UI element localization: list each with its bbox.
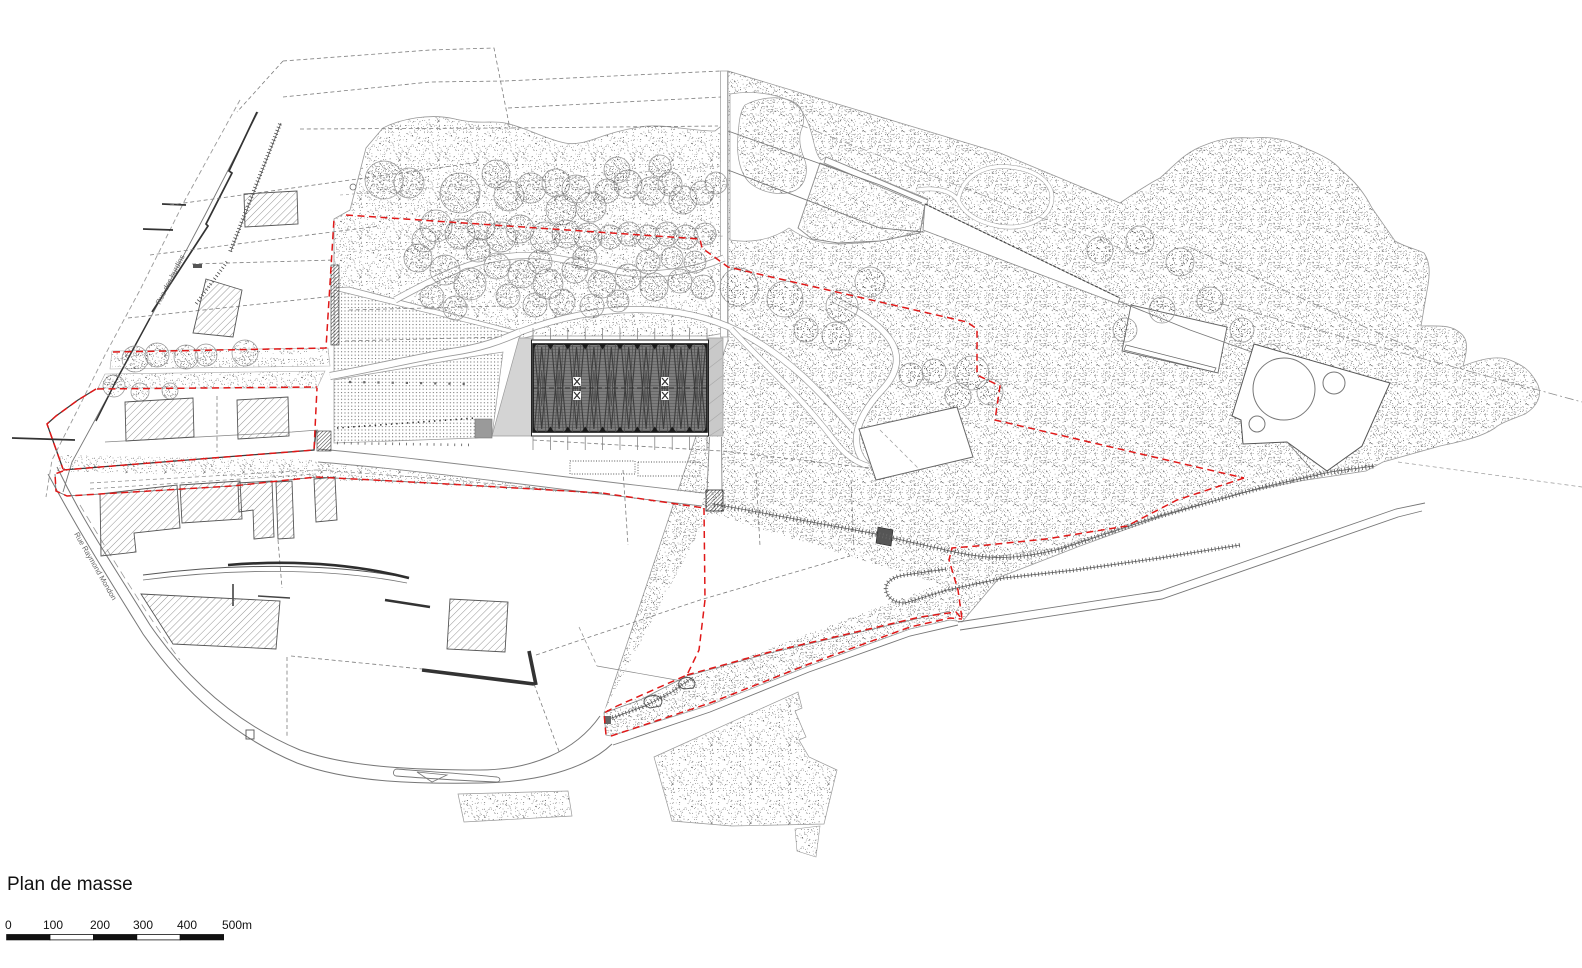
svg-text:200: 200 [90, 918, 110, 932]
svg-text:400: 400 [177, 918, 197, 932]
svg-text:500m: 500m [222, 918, 252, 932]
svg-text:Plan de masse: Plan de masse [7, 874, 133, 895]
svg-text:100: 100 [43, 918, 63, 932]
svg-text:0: 0 [5, 918, 12, 932]
svg-text:300: 300 [133, 918, 153, 932]
